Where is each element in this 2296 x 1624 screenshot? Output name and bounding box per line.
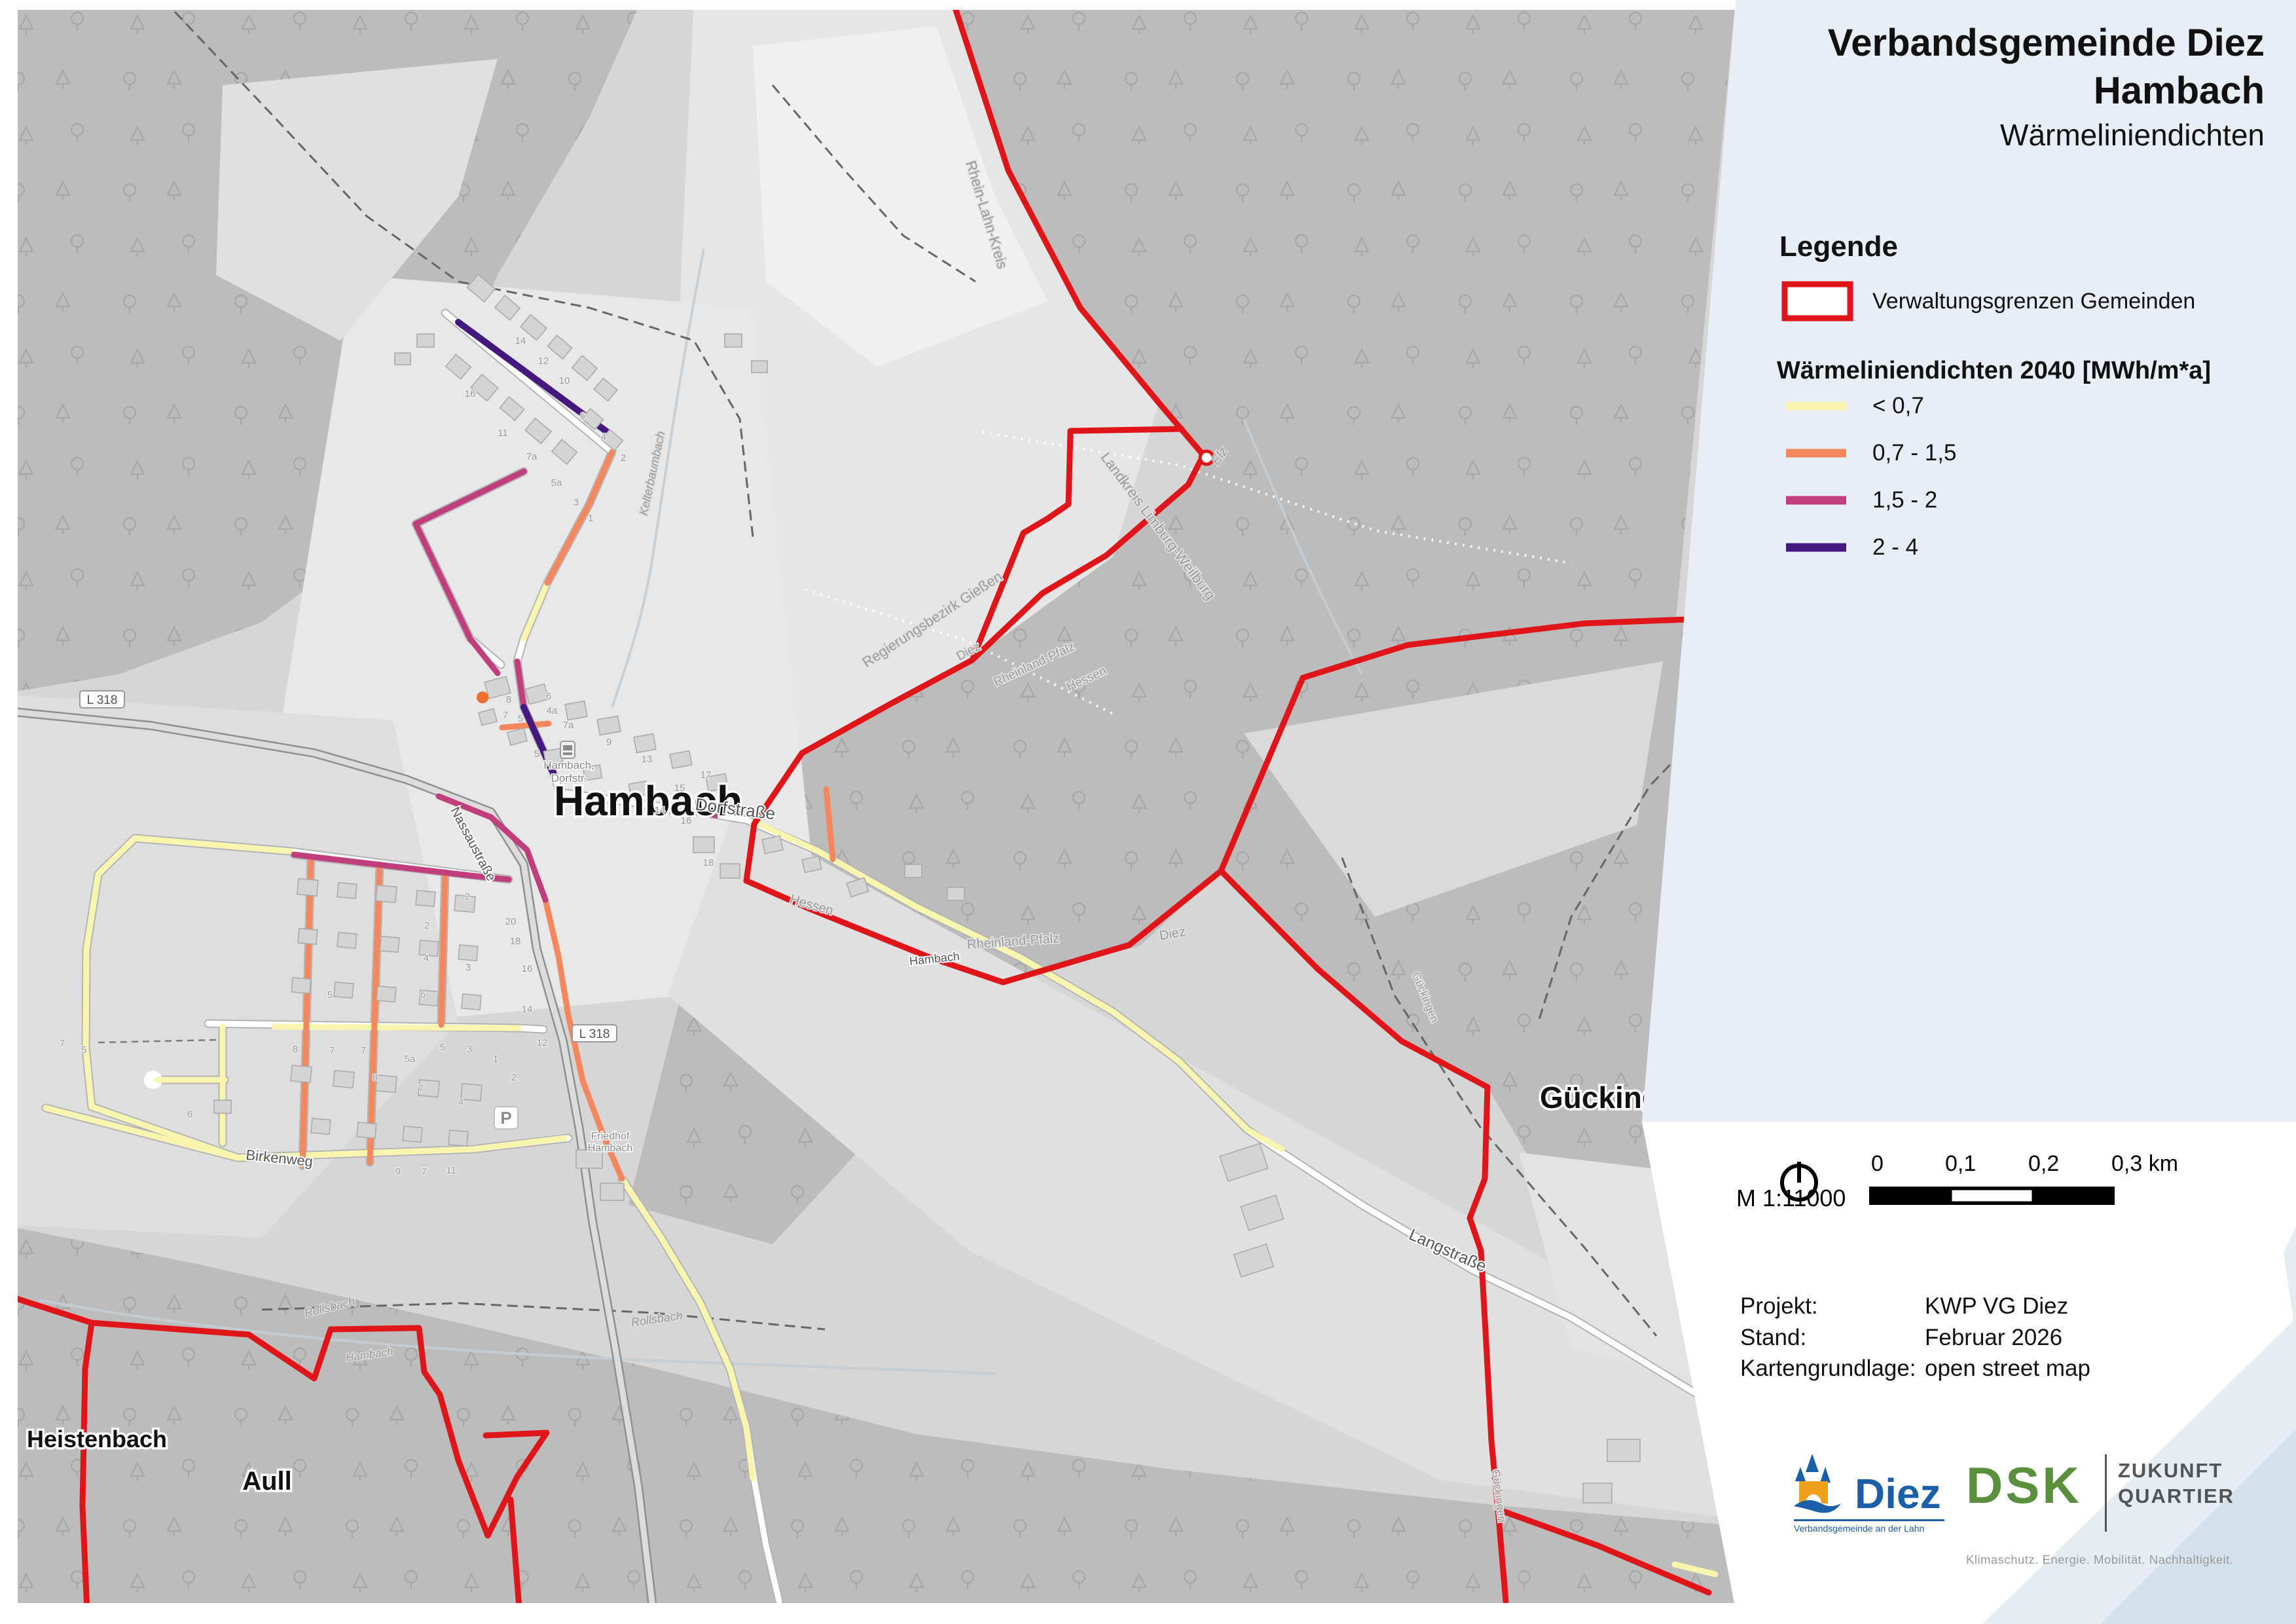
house-number: 10 — [559, 375, 570, 386]
legend-item-label: 1,5 - 2 — [1872, 487, 1937, 513]
building — [565, 701, 587, 720]
house-number: 2 — [511, 1072, 517, 1083]
svg-text:P: P — [500, 1108, 511, 1128]
house-number: 11 — [498, 428, 508, 439]
house-number: 17 — [701, 769, 712, 781]
house-number: 7a — [526, 451, 538, 462]
house-number: 5 — [327, 989, 333, 1001]
building — [462, 994, 481, 1010]
building — [693, 837, 714, 853]
building — [214, 1100, 231, 1113]
house-number: 2 — [621, 452, 626, 464]
house-number: 7 — [422, 1166, 427, 1177]
building — [634, 734, 656, 753]
legend-item-label: 0,7 - 1,5 — [1872, 440, 1956, 466]
map-label: Friedhof — [591, 1131, 630, 1142]
dsk-zukunft: ZUKUNFT — [2118, 1458, 2234, 1484]
dsk-logo-divider — [2105, 1454, 2107, 1532]
house-number: 7 — [361, 1045, 366, 1056]
building — [1583, 1483, 1612, 1503]
legend-item: < 0,7 — [1783, 393, 1924, 419]
map-subtitle: Wärmeliniendichten — [1642, 115, 2296, 155]
legend-panel: Verbandsgemeinde Diez Hambach Wärmelinie… — [1642, 0, 2296, 1122]
house-number: 5 — [81, 1044, 86, 1056]
diez-logo: Diez Verbandsgemeinde an der Lahn — [1794, 1452, 1944, 1534]
house-number: 20 — [505, 916, 517, 927]
house-number: 18 — [510, 936, 521, 947]
house-number: 5a — [405, 1054, 416, 1065]
house-number: 7 — [418, 1083, 424, 1094]
fire-station-icon — [477, 692, 488, 703]
house-number: 8 — [293, 1044, 298, 1055]
basemap-value: open street map — [1925, 1353, 2090, 1384]
stand-label: Stand: — [1740, 1322, 1925, 1354]
scale-bar-graphic — [1868, 1185, 2143, 1208]
admin-boundary-swatch — [1781, 280, 1854, 322]
building — [600, 1183, 624, 1200]
house-number: 7 — [503, 710, 508, 721]
house-number: 9 — [606, 737, 611, 748]
house-number: 7a — [563, 720, 574, 731]
house-number: 8 — [373, 1072, 378, 1083]
house-number: 16 — [681, 815, 692, 826]
building — [357, 1122, 376, 1138]
dsk-quartier: QUARTIER — [2118, 1484, 2234, 1509]
house-number: 1 — [493, 1054, 498, 1065]
house-number: 6 — [187, 1109, 192, 1120]
house-number: 4 — [458, 1097, 464, 1108]
legend-item-label: 2 - 4 — [1872, 534, 1918, 561]
building — [311, 1118, 331, 1134]
house-number: 7 — [60, 1038, 65, 1049]
map-sheet: P L 318L 318 HambachGückingenHeistenbach… — [0, 0, 2296, 1624]
project-value: KWP VG Diez — [1925, 1291, 2068, 1322]
building — [337, 932, 357, 948]
house-number: 6 — [580, 411, 585, 422]
building — [337, 883, 357, 898]
building — [298, 929, 318, 944]
house-number: 14 — [655, 805, 666, 816]
building — [417, 334, 434, 347]
building — [376, 885, 397, 903]
map-scale-text: M 1:11000 — [1736, 1185, 1846, 1212]
map-margin-bottom — [0, 1603, 1768, 1624]
diez-logo-text: Diez — [1855, 1469, 1941, 1518]
building — [458, 945, 478, 961]
house-number: 12 — [538, 356, 549, 367]
house-number: 18 — [703, 857, 714, 868]
building — [905, 864, 922, 877]
house-number: 9 — [395, 1166, 401, 1177]
scale-tick: 0,3 km — [2111, 1151, 2178, 1177]
building — [297, 879, 318, 896]
legend-heading: Legende — [1779, 231, 1898, 263]
house-number: 14 — [515, 335, 526, 346]
building — [403, 1126, 422, 1142]
building — [291, 978, 311, 993]
house-number: 4 — [424, 953, 429, 964]
diez-logo-tagline: Verbandsgemeinde an der Lahn — [1794, 1519, 1944, 1534]
map-label: Hambach — [588, 1143, 632, 1154]
building — [947, 887, 964, 900]
house-number: 3 — [465, 962, 471, 973]
building — [725, 334, 742, 347]
stand-value: Februar 2026 — [1925, 1322, 2062, 1354]
building — [461, 1084, 482, 1101]
map-margin-left — [0, 0, 18, 1624]
house-number: 4 — [601, 432, 606, 443]
map-label: Heistenbach — [27, 1426, 167, 1452]
building — [597, 716, 621, 735]
scale-tick: 0 — [1871, 1151, 1884, 1177]
building — [752, 361, 767, 373]
building — [334, 982, 354, 998]
legend-item: 2 - 4 — [1783, 534, 1918, 561]
map-label: Aull — [242, 1467, 292, 1496]
building — [333, 1071, 354, 1088]
house-number: 5 — [534, 748, 539, 760]
building — [376, 1075, 397, 1093]
house-number: 3 — [467, 1044, 472, 1055]
building — [670, 751, 691, 769]
basemap-label: Kartengrundlage: — [1740, 1353, 1925, 1384]
map-title-line2: Hambach — [1642, 67, 2296, 115]
admin-boundary-label: Verwaltungsgrenzen Gemeinden — [1872, 289, 2195, 314]
project-info: Projekt: KWP VG Diez Stand: Februar 2026… — [1740, 1291, 2090, 1384]
diez-castle-icon — [1794, 1452, 1850, 1518]
scale-bar: 0 0,1 0,2 0,3 km — [1868, 1151, 2182, 1217]
house-number: 5 — [518, 713, 523, 724]
house-number: 14 — [522, 1004, 533, 1015]
house-number: 1 — [588, 513, 593, 524]
building — [762, 836, 783, 853]
legend-item-label: < 0,7 — [1872, 393, 1924, 419]
map-label: Dorfstr. — [551, 772, 587, 784]
building — [376, 986, 396, 1002]
legend-item: 0,7 - 1,5 — [1783, 440, 1956, 466]
house-number: 5 — [440, 1042, 445, 1053]
building — [720, 864, 740, 878]
legend-admin-row: Verwaltungsgrenzen Gemeinden — [1781, 280, 2195, 322]
building — [380, 936, 399, 952]
dsk-logo: DSK ZUKUNFT QUARTIER Klimaschutz. Energi… — [1966, 1462, 2082, 1508]
house-number: 5a — [551, 477, 562, 489]
house-number: 4a — [547, 705, 558, 716]
house-number: 15 — [674, 783, 685, 794]
building — [291, 1065, 312, 1083]
scale-tick: 0,1 — [1945, 1151, 1976, 1177]
house-number: 16 — [465, 388, 476, 399]
dsk-logo-text: DSK — [1966, 1456, 2082, 1514]
legend-item: 1,5 - 2 — [1783, 487, 1937, 513]
building — [416, 891, 435, 906]
building — [802, 857, 822, 873]
house-number: 16 — [522, 963, 533, 974]
house-number: 7 — [329, 1045, 335, 1056]
map-label: Hambach, — [543, 759, 594, 771]
road-ref-text: L 318 — [579, 1027, 610, 1041]
road-ref-text: L 318 — [87, 693, 118, 707]
scale-tick: 0,2 — [2028, 1151, 2059, 1177]
house-number: 2 — [424, 920, 429, 931]
dsk-tagline: Klimaschutz. Energie. Mobilität. Nachhal… — [1966, 1553, 2234, 1567]
house-number: 3 — [574, 497, 579, 508]
heat-legend-title: Wärmeliniendichten 2040 [MWh/m*a] — [1777, 357, 2211, 385]
info-panel: M 1:11000 0 0,1 0,2 0,3 km Projekt: KWP … — [1642, 1122, 2296, 1624]
house-number: 11 — [446, 1165, 456, 1176]
house-number: 13 — [642, 754, 653, 765]
building — [1607, 1439, 1640, 1462]
house-number: 6 — [546, 691, 551, 702]
map-title-line1: Verbandsgemeinde Diez — [1642, 20, 2296, 67]
house-number: 8 — [506, 694, 511, 705]
building — [395, 353, 410, 365]
project-label: Projekt: — [1740, 1291, 1925, 1322]
house-number: 12 — [537, 1037, 548, 1048]
building — [448, 1130, 468, 1146]
house-number: 6 — [420, 989, 426, 1001]
house-number: 2 — [465, 891, 470, 902]
